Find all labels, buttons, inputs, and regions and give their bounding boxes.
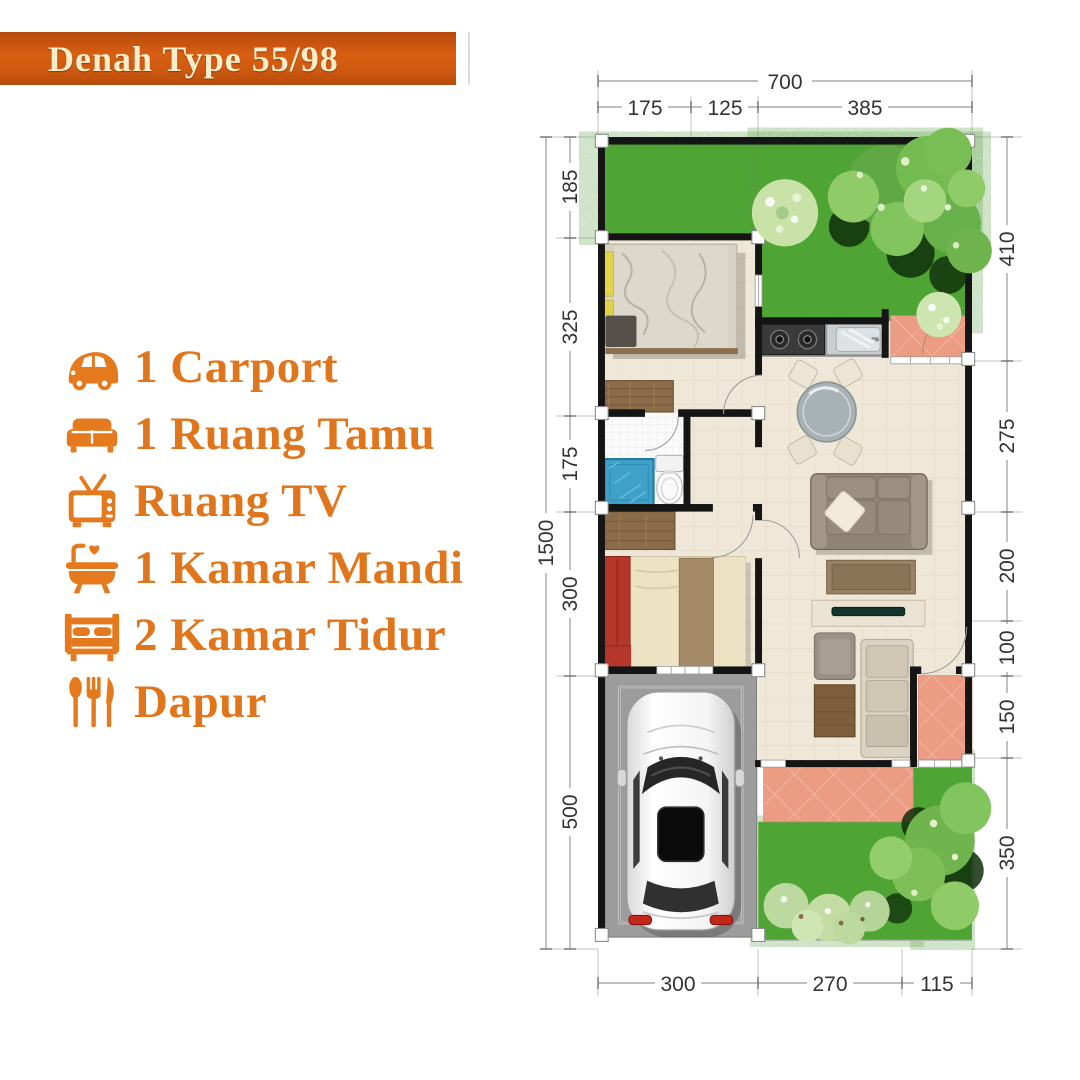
- dim-top-total: 700: [598, 70, 972, 94]
- plan-body: [595, 128, 991, 945]
- dim-label: 385: [847, 97, 882, 120]
- dim-label: 175: [559, 446, 582, 481]
- dim-left-segments: 185 325 175 300 500: [559, 137, 582, 949]
- bed-1: [603, 244, 745, 359]
- sofa: [811, 474, 933, 555]
- bush-right-dotted: [916, 292, 961, 337]
- bed-2: [604, 557, 750, 674]
- dim-left-total: 1500: [535, 137, 558, 949]
- hall-floor: [686, 410, 761, 510]
- dim-label: 175: [627, 97, 662, 120]
- dim-label: 325: [559, 309, 582, 344]
- poster: Denah Type 55/98 1 Carport 1 Ruang Tamu …: [0, 0, 1080, 1080]
- dim-label: 200: [996, 548, 1019, 583]
- floor-plan: 700 175 125 385 1500: [0, 0, 1080, 1080]
- stove: [761, 324, 824, 354]
- sink: [827, 324, 887, 354]
- coffee-table: [827, 560, 916, 594]
- dim-label: 500: [559, 794, 582, 829]
- terrace-right-strip: [919, 676, 972, 760]
- dim-label: 1500: [535, 520, 558, 567]
- dim-label: 410: [996, 231, 1019, 266]
- bush-top-middle: [752, 179, 818, 246]
- kitchen-counter: [758, 322, 888, 357]
- dim-label: 270: [812, 973, 847, 996]
- dim-label: 300: [660, 973, 695, 996]
- car: [617, 692, 744, 937]
- taillight-right: [710, 915, 732, 924]
- dim-label: 115: [920, 973, 953, 996]
- dim-label: 125: [707, 97, 742, 120]
- dim-label: 150: [996, 699, 1019, 734]
- toilet: [656, 455, 684, 504]
- dim-label: 275: [996, 418, 1019, 453]
- dim-label: 300: [559, 576, 582, 611]
- tv-cabinet: [812, 600, 925, 626]
- shower-tray: [604, 459, 653, 506]
- dim-label: 100: [996, 630, 1019, 665]
- dim-label: 185: [559, 169, 582, 204]
- dining-table: [797, 382, 856, 442]
- dim-label: 700: [767, 71, 802, 94]
- dim-right-segments: 410 275 200 100 150 350: [996, 137, 1019, 949]
- side-table-wood: [814, 685, 855, 737]
- dim-bottom-segments: 300 270 115: [598, 972, 972, 996]
- dim-top-segments: 175 125 385: [598, 96, 972, 120]
- taillight-left: [629, 915, 651, 924]
- wardrobe-bedroom-1: [601, 381, 674, 412]
- terrace-back: [764, 762, 914, 822]
- tv: [832, 607, 905, 615]
- wardrobe-bedroom-2: [604, 512, 675, 550]
- dim-label: 350: [996, 835, 1019, 870]
